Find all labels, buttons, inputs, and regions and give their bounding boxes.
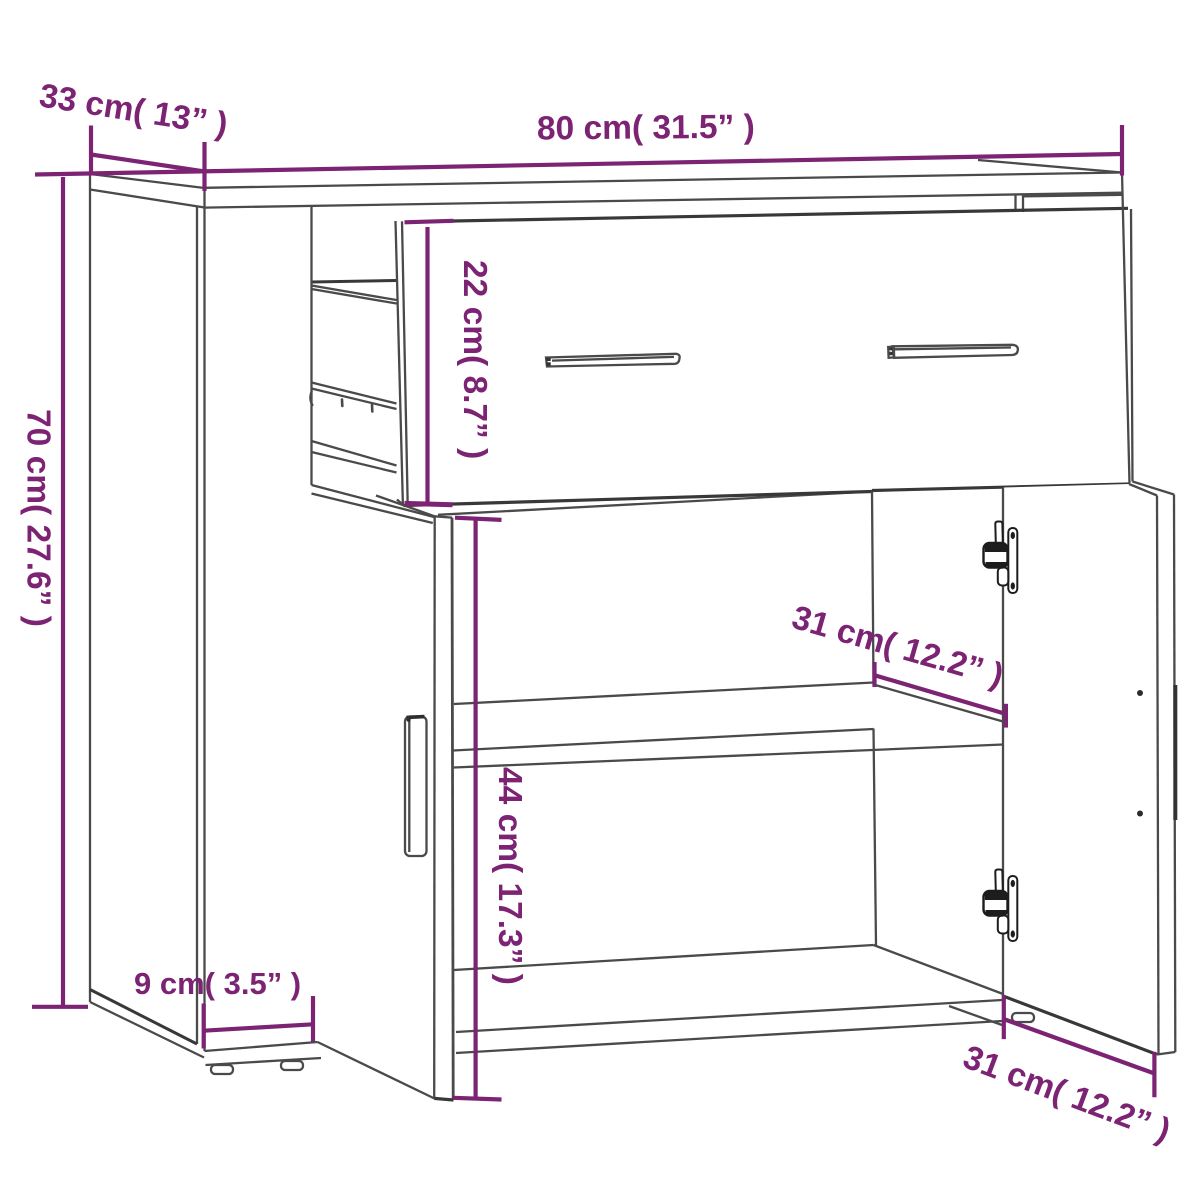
svg-text:22 cm( 8.7” ): 22 cm( 8.7” ) xyxy=(456,260,493,459)
svg-text:44 cm( 17.3” ): 44 cm( 17.3” ) xyxy=(491,767,528,985)
svg-text:70 cm( 27.6” ): 70 cm( 27.6” ) xyxy=(20,409,57,627)
svg-text:80 cm( 31.5” ): 80 cm( 31.5” ) xyxy=(537,109,755,148)
svg-text:9 cm( 3.5” ): 9 cm( 3.5” ) xyxy=(134,966,301,1001)
